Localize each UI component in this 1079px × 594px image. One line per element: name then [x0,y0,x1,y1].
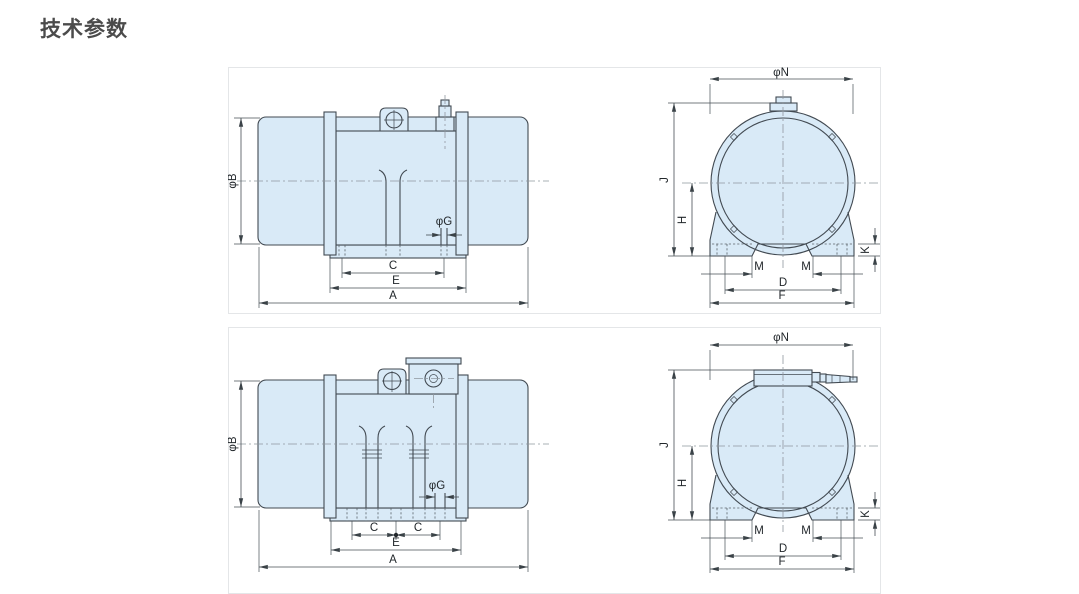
motor-end-body [682,90,878,268]
dim-label-E: E [392,275,400,287]
motor-body [237,95,549,258]
dim-label-F: F [778,290,785,302]
dim-label-D: D [779,543,787,555]
dim-label-A: A [389,554,397,566]
dim-label-diaB: φB [228,173,239,188]
dim-label-diaG: φG [429,480,445,492]
dim-label-H: H [677,479,689,487]
dim-label-M-right: M [801,525,811,537]
cable-gland [812,373,820,383]
terminal-box-top [754,370,857,386]
dim-label-C-right: C [414,522,422,534]
drawings-bottom: φB φG C C E A [228,327,880,594]
motor-end-body [682,355,878,532]
dim-label-M-left: M [754,525,764,537]
dim-label-J: J [659,442,671,448]
end-view-drawing: φN J H K M M D F [659,332,880,573]
dim-label-A: A [389,290,397,302]
motor-body [237,358,549,521]
side-view-drawing: φB φG C E A [228,95,549,308]
dim-label-diaB: φB [228,436,239,451]
dim-label-C: C [389,260,397,272]
dim-label-F: F [778,556,785,568]
dim-label-diaN: φN [773,67,789,79]
drawings-top: φB φG C E A [228,67,880,313]
dim-label-J: J [659,177,671,183]
dim-label-K: K [860,246,872,254]
dim-label-C-left: C [370,522,378,534]
dim-label-E: E [392,537,400,549]
dim-label-M-left: M [754,261,764,273]
side-view-drawing: φB φG C C E A [228,358,549,572]
dim-label-H: H [677,216,689,224]
dim-label-D: D [779,277,787,289]
dim-label-diaG: φG [436,216,452,228]
dim-label-M-right: M [801,261,811,273]
top-plug [770,103,797,111]
end-view-drawing: φN J H K M M D F [659,67,880,308]
dim-label-K: K [860,510,872,518]
dim-label-diaN: φN [773,332,789,344]
page-title: 技术参数 [40,13,128,43]
